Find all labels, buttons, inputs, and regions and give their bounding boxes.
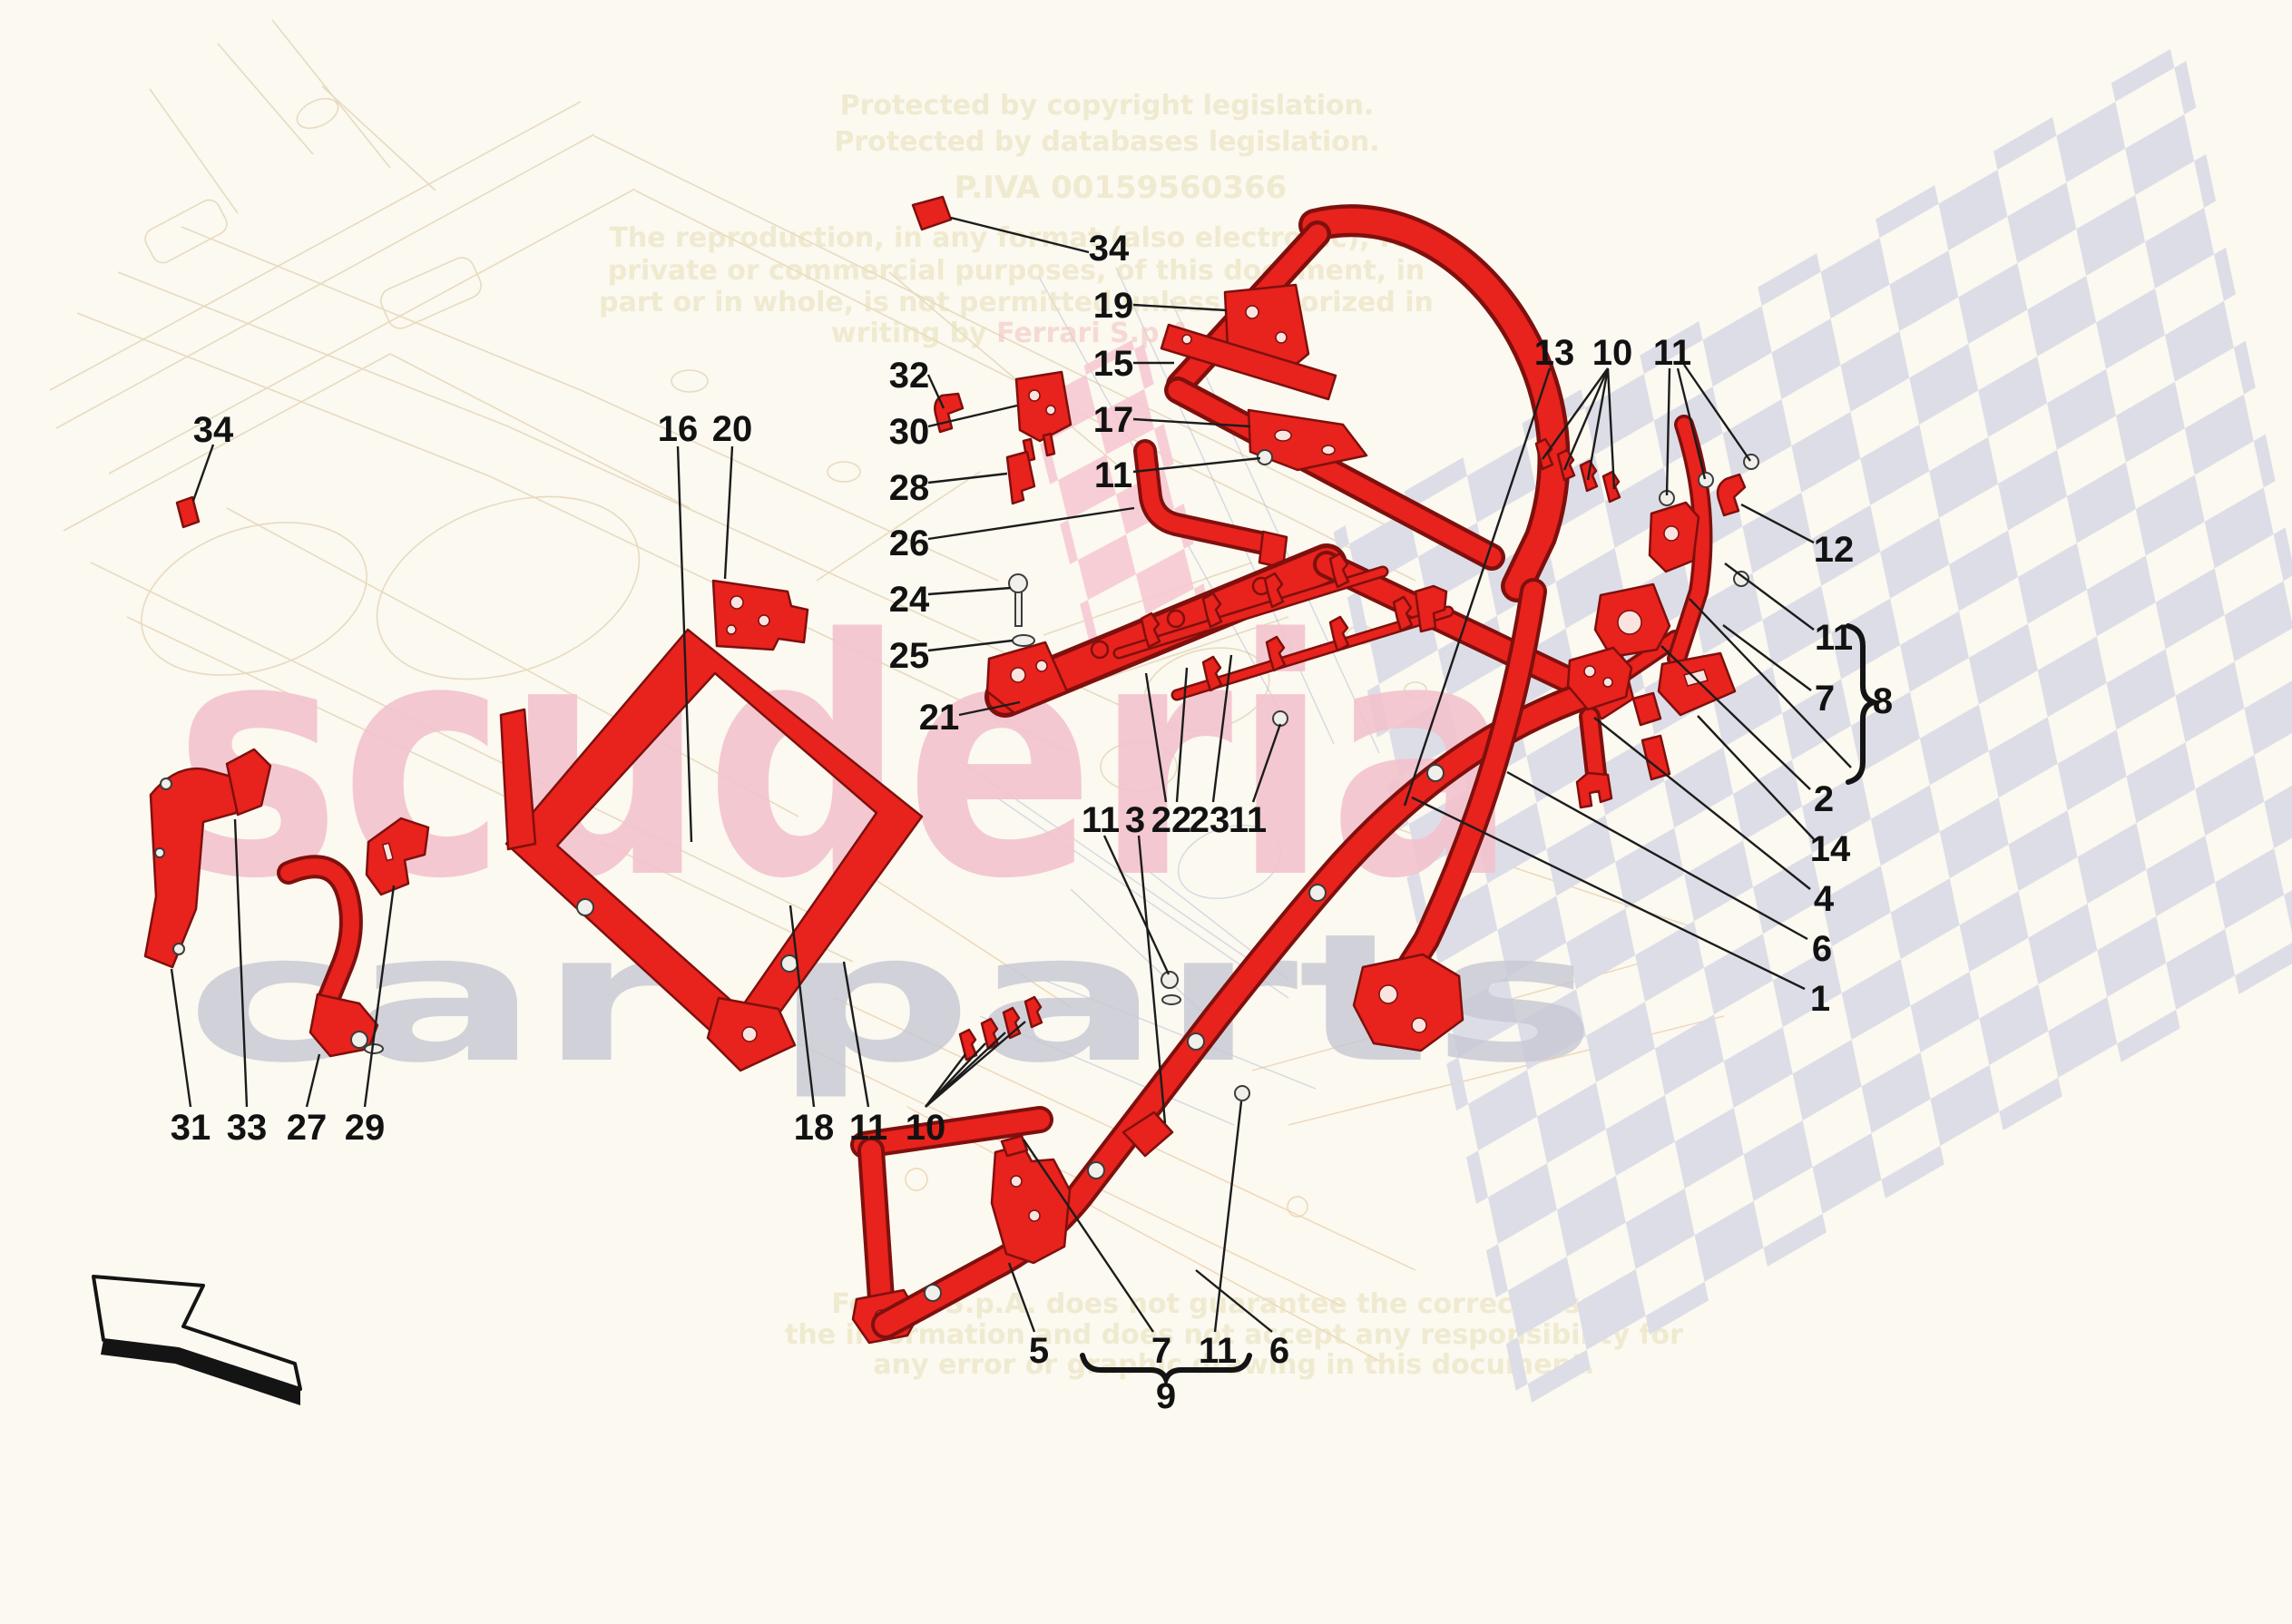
part-number-label: 4	[1814, 879, 1835, 919]
part-number-label: 10	[906, 1108, 946, 1148]
part-number-label: 11	[1094, 455, 1132, 495]
bolt-central	[1161, 972, 1178, 988]
leader-line	[193, 445, 213, 501]
part-number-label: 7	[1151, 1331, 1171, 1371]
part-number-label: 19	[1093, 286, 1134, 326]
part-number-label: 33	[227, 1108, 268, 1148]
part-number-label: 18	[794, 1108, 835, 1148]
part-number-label: 3	[1125, 800, 1145, 840]
part-number-label: 16	[658, 409, 699, 449]
part-number-label: 13	[1534, 333, 1575, 373]
part-number-label: 11	[849, 1108, 887, 1148]
screw-lower-11	[1235, 1086, 1249, 1101]
part-number-label: 10	[1592, 333, 1633, 373]
part-number-label: 1	[1810, 979, 1830, 1019]
part-number-label: 34	[193, 410, 234, 450]
leader-line	[928, 474, 1007, 483]
part-number-label: 25	[889, 636, 930, 676]
watermark-vat-line: P.IVA 00159560366	[955, 170, 1288, 206]
screw-right-11b	[1699, 473, 1713, 487]
bolt-24-shank	[1015, 588, 1022, 626]
part-number-label: 27	[287, 1108, 328, 1148]
part-number-label: 11	[1082, 800, 1120, 840]
part-number-label: 17	[1093, 400, 1134, 440]
screw-mid-11	[1273, 711, 1288, 726]
part-number-label: 21	[919, 698, 960, 738]
part-number-label: 11	[1199, 1331, 1237, 1371]
part-pad-34-left	[177, 497, 199, 527]
part-bottom-frame-left-bar-fill	[871, 1150, 882, 1312]
part-number-label: 6	[1812, 929, 1832, 969]
watermark-copyright-line2: Protected by databases legislation.	[834, 126, 1379, 158]
part-number-label: 15	[1093, 344, 1134, 384]
part-number-label: 34	[1089, 229, 1130, 269]
part-number-label: 11	[1653, 333, 1691, 373]
part-number-label: 11	[1815, 618, 1853, 658]
part-number-label: 12	[1814, 530, 1855, 570]
part-number-label: 26	[889, 523, 930, 563]
bolt-24-head	[1009, 574, 1027, 592]
part-number-label: 22	[1151, 800, 1192, 840]
part-number-label: 20	[712, 409, 753, 449]
parts-diagram-canvas: Protected by copyright legislation. Prot…	[0, 0, 2292, 1619]
part-number-label: 9	[1156, 1376, 1176, 1416]
watermark-copyright-line1: Protected by copyright legislation.	[840, 90, 1375, 122]
part-number-label: 24	[889, 580, 930, 620]
part-number-label: 11	[1229, 800, 1267, 840]
part-number-label: 28	[889, 468, 930, 508]
part-number-label: 14	[1810, 829, 1851, 869]
part-number-label: 6	[1269, 1331, 1289, 1371]
washer-25	[1013, 635, 1034, 646]
part-number-label: 29	[345, 1108, 386, 1148]
watermark-repro-line4: writing by Ferrari S.p.A.	[831, 318, 1201, 349]
part-number-label: 5	[1029, 1331, 1049, 1371]
direction-arrow	[93, 1277, 300, 1405]
part-number-label: 7	[1815, 679, 1835, 719]
part-number-label: 2	[1814, 779, 1834, 819]
leader-line	[725, 446, 732, 579]
part-number-label: 30	[889, 412, 930, 452]
part-number-label: 32	[889, 356, 930, 396]
part-number-label: 31	[171, 1108, 211, 1148]
part-number-label: 23	[1190, 800, 1230, 840]
part-shield-5	[992, 1145, 1070, 1263]
watermark-repro-line3: part or in whole, is not permitted unles…	[599, 287, 1434, 318]
part-number-label: 8	[1873, 681, 1893, 721]
